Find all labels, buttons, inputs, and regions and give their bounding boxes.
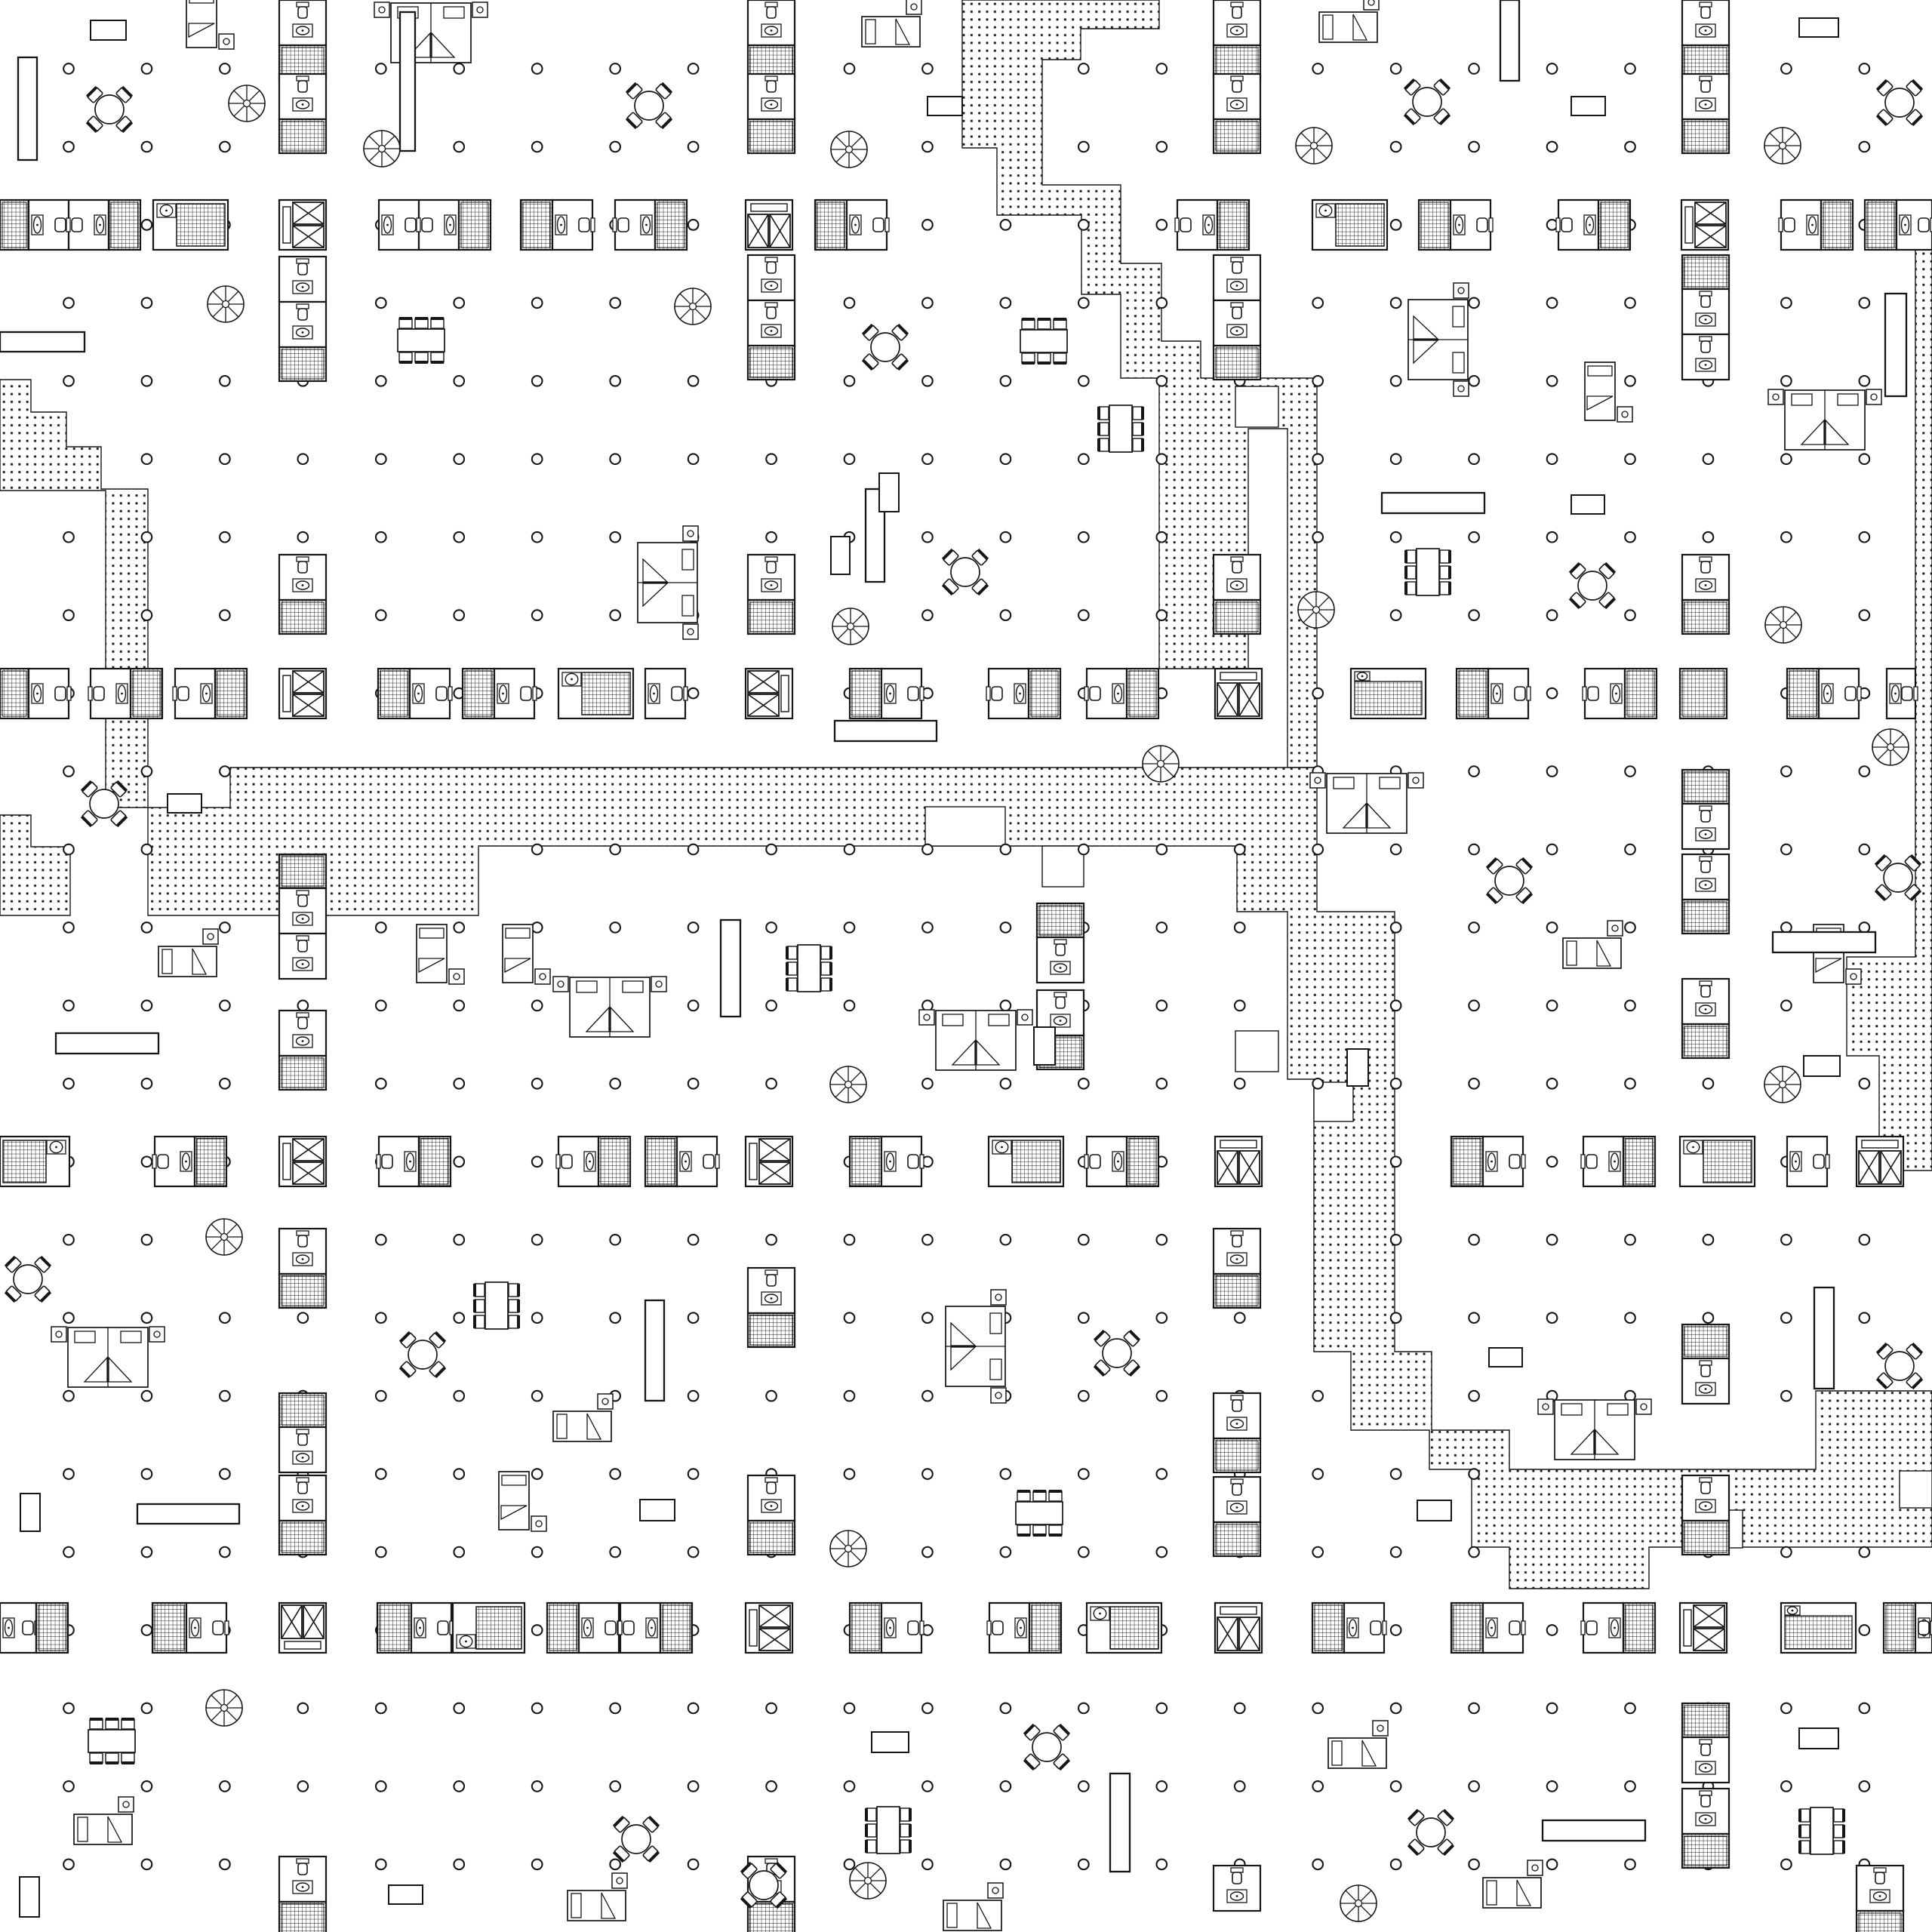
shower-pod <box>1682 1024 1729 1058</box>
structural-column <box>532 1078 543 1089</box>
structural-column <box>1547 376 1558 386</box>
shower-pod <box>815 200 847 250</box>
structural-column <box>1157 844 1168 855</box>
path-opening <box>1900 1471 1932 1508</box>
coffee-table <box>872 1732 909 1752</box>
structural-column <box>922 1547 933 1558</box>
elevator <box>1680 1603 1727 1653</box>
counter <box>1885 294 1906 396</box>
structural-column <box>688 1312 699 1323</box>
structural-column <box>610 63 620 74</box>
structural-column <box>1078 298 1089 309</box>
structural-column <box>610 142 620 152</box>
structural-column <box>1781 532 1792 543</box>
structural-column <box>454 454 464 464</box>
structural-column <box>1391 1547 1401 1558</box>
structural-column <box>1001 610 1011 620</box>
structural-column <box>844 1703 855 1714</box>
wc-pod-stack <box>1682 1737 1729 1783</box>
structural-column <box>1625 1078 1635 1089</box>
bathroom-pod <box>1087 1603 1161 1653</box>
structural-column <box>1078 1391 1089 1401</box>
wc-pod-stack <box>1214 74 1260 119</box>
shower-pod <box>1457 669 1488 718</box>
structural-column <box>376 1078 386 1089</box>
wc-pod-stack <box>1682 804 1729 849</box>
elevator <box>746 1137 792 1186</box>
structural-column <box>1469 1001 1479 1011</box>
structural-column <box>376 376 386 386</box>
wc-pod <box>29 669 71 718</box>
structural-column <box>844 1312 855 1323</box>
spiral-stair <box>1764 1066 1801 1103</box>
structural-column <box>766 532 777 543</box>
structural-column <box>1235 844 1245 855</box>
structural-column <box>1235 922 1245 933</box>
structural-column <box>1078 532 1089 543</box>
wc-pod-stack <box>1037 937 1084 983</box>
rect-table-6-chairs <box>786 945 832 992</box>
shower-pod <box>521 200 552 250</box>
structural-column <box>844 1391 855 1401</box>
double-bed <box>638 526 698 639</box>
wc-pod-stack <box>1682 334 1729 380</box>
structural-column <box>1001 1001 1011 1011</box>
shower-pod <box>850 1603 881 1653</box>
wc-pod <box>1084 669 1127 718</box>
structural-column <box>1001 532 1011 543</box>
structural-column <box>922 1078 933 1089</box>
wc-pod-stack <box>1682 289 1729 334</box>
structural-column <box>1391 376 1401 386</box>
shower-pod <box>1127 669 1158 718</box>
structural-column <box>688 688 699 699</box>
wc-pod <box>556 1137 598 1186</box>
wc-pod <box>410 669 452 718</box>
round-table-4-chairs <box>1875 854 1921 901</box>
structural-column <box>922 1391 933 1401</box>
structural-column <box>1625 610 1635 620</box>
double-bed <box>1538 1399 1651 1460</box>
structural-column <box>532 1781 543 1792</box>
structural-column <box>766 844 777 855</box>
structural-column <box>1625 1860 1635 1870</box>
structural-column <box>1703 1235 1714 1245</box>
structural-column <box>1469 1391 1479 1401</box>
structural-column <box>1781 298 1792 309</box>
round-table-4-chairs <box>1023 1724 1070 1770</box>
structural-column <box>376 63 386 74</box>
structural-column <box>1391 1001 1401 1011</box>
structural-column <box>922 142 933 152</box>
structural-column <box>1078 844 1089 855</box>
shower-pod <box>279 347 326 381</box>
structural-column <box>142 1157 152 1168</box>
wc-pod <box>1787 1137 1829 1186</box>
wc-pod-stack <box>279 555 326 600</box>
structural-column <box>1312 844 1323 855</box>
structural-column <box>63 766 74 777</box>
wc-pod-stack <box>279 934 326 979</box>
wc-pod <box>552 200 595 250</box>
structural-column <box>142 376 152 386</box>
shower-pod <box>748 346 795 380</box>
structural-column <box>766 1235 777 1245</box>
structural-column <box>63 1078 74 1089</box>
structural-column <box>454 1001 464 1011</box>
round-table-4-chairs <box>1876 1343 1923 1389</box>
spiral-stair <box>208 286 244 322</box>
structural-column <box>1625 1703 1635 1714</box>
structural-column <box>688 1547 699 1558</box>
shower-pod <box>1598 200 1630 250</box>
structural-column <box>688 1781 699 1792</box>
wc-pod <box>152 1137 195 1186</box>
structural-column <box>63 298 74 309</box>
wc-pod <box>173 669 215 718</box>
structural-column <box>1157 1391 1168 1401</box>
wc-pod-stack <box>748 1268 795 1313</box>
wc-pod <box>186 1603 229 1653</box>
structural-column <box>1391 1469 1401 1479</box>
structural-column <box>610 1469 620 1479</box>
round-table-4-chairs <box>1404 78 1451 125</box>
structural-column <box>63 1547 74 1558</box>
structural-column <box>688 454 699 464</box>
structural-column <box>1469 766 1479 777</box>
floor-plan-canvas <box>0 0 1932 1932</box>
shower-pod <box>1865 200 1897 250</box>
elevator <box>1215 1137 1262 1186</box>
structural-column <box>532 1235 543 1245</box>
structural-column <box>1860 532 1870 543</box>
wc-pod-stack <box>748 555 795 600</box>
double-bed <box>1408 283 1469 396</box>
structural-column <box>1157 298 1168 309</box>
counter <box>645 1300 664 1401</box>
structural-column <box>1312 1078 1323 1089</box>
wc-pod <box>881 1603 924 1653</box>
structural-column <box>610 1078 620 1089</box>
wc-pod-stack <box>1214 555 1260 600</box>
structural-column <box>1157 376 1168 386</box>
structural-column <box>1703 454 1714 464</box>
single-bed <box>862 0 921 47</box>
structural-column <box>688 1235 699 1245</box>
counter <box>721 920 740 1017</box>
structural-column <box>1391 298 1401 309</box>
shower-pod <box>748 1313 795 1347</box>
structural-column <box>1078 454 1089 464</box>
shower-pod <box>195 1137 226 1186</box>
structural-column <box>1078 1547 1089 1558</box>
structural-column <box>532 376 543 386</box>
wc-pod <box>29 200 71 250</box>
structural-column <box>1547 1625 1558 1635</box>
wc-pod <box>1488 669 1531 718</box>
spiral-stair <box>206 1219 242 1255</box>
structural-column <box>454 1312 464 1323</box>
structural-column <box>142 610 152 620</box>
structural-column <box>1781 844 1792 855</box>
structural-column <box>1391 1860 1401 1870</box>
shower-pod <box>419 1137 451 1186</box>
structural-column <box>1391 922 1401 933</box>
coffee-table <box>1799 18 1838 37</box>
structural-column <box>1469 1547 1479 1558</box>
structural-column <box>454 1157 464 1168</box>
structural-column <box>1860 376 1870 386</box>
wc-pod-stack <box>279 1857 326 1902</box>
structural-column <box>844 1781 855 1792</box>
structural-column <box>1547 220 1558 230</box>
shower-pod <box>463 669 494 718</box>
structural-column <box>1001 376 1011 386</box>
structural-column <box>1001 454 1011 464</box>
structural-column <box>1469 1781 1479 1792</box>
structural-column <box>844 1235 855 1245</box>
shower-pod <box>1312 1603 1344 1653</box>
structural-column <box>63 1781 74 1792</box>
structural-column <box>532 1157 543 1168</box>
structural-column <box>532 1469 543 1479</box>
shower-pod <box>1682 1521 1729 1555</box>
structural-column <box>142 63 152 74</box>
shower-pod <box>279 1521 326 1555</box>
wc-pod <box>1483 1603 1525 1653</box>
structural-column <box>1469 1703 1479 1714</box>
structural-column <box>1312 376 1323 386</box>
structural-column <box>1547 922 1558 933</box>
wc-pod <box>1581 1137 1623 1186</box>
wc-pod <box>1344 1603 1386 1653</box>
shower-pod <box>1682 1324 1729 1358</box>
single-bed <box>553 1394 613 1441</box>
wc-pod-stack <box>748 300 795 346</box>
spiral-stair <box>1764 128 1801 164</box>
structural-column <box>1625 376 1635 386</box>
structural-column <box>610 298 620 309</box>
shower-pod <box>152 1603 186 1653</box>
structural-column <box>1703 1312 1714 1323</box>
spiral-stair <box>831 131 867 168</box>
sanitary-modules <box>0 0 1932 1932</box>
structural-column <box>454 922 464 933</box>
structural-column <box>1391 1625 1401 1635</box>
structural-column <box>220 1001 230 1011</box>
spiral-stair <box>364 131 400 167</box>
structural-column <box>610 1781 620 1792</box>
structural-column <box>220 63 230 74</box>
structural-column <box>1078 142 1089 152</box>
structural-column <box>63 610 74 620</box>
structural-column <box>1469 844 1479 855</box>
structural-column <box>1312 1391 1323 1401</box>
wc-pod <box>1779 200 1821 250</box>
elevator <box>1215 1603 1262 1653</box>
structural-column <box>376 1781 386 1792</box>
shower-pod <box>1214 1438 1260 1472</box>
shower-pod <box>748 1521 795 1555</box>
structural-column <box>220 1781 230 1792</box>
structural-column <box>688 844 699 855</box>
structural-column <box>1078 1703 1089 1714</box>
wc-pod-stack <box>279 74 326 119</box>
structural-column <box>220 142 230 152</box>
structural-column <box>532 1001 543 1011</box>
structural-column <box>454 376 464 386</box>
structural-column <box>63 1391 74 1401</box>
structural-column <box>1625 532 1635 543</box>
bathroom-pod <box>1680 1137 1755 1186</box>
round-table-4-chairs <box>1094 1330 1140 1377</box>
wc-pod-stack <box>1682 1475 1729 1521</box>
structural-column <box>1547 1781 1558 1792</box>
structural-column <box>1625 844 1635 855</box>
structural-column <box>454 532 464 543</box>
rect-table-6-chairs <box>1016 1490 1063 1537</box>
structural-column <box>922 922 933 933</box>
structural-column <box>1860 1078 1870 1089</box>
wc-pod <box>1897 200 1932 250</box>
structural-column <box>1625 766 1635 777</box>
structural-column <box>1157 1312 1168 1323</box>
coffee-table <box>1571 97 1605 115</box>
spiral-stair <box>1340 1885 1377 1921</box>
coffee-table <box>928 97 962 115</box>
structural-column <box>1078 1078 1089 1089</box>
elevator <box>746 1603 792 1653</box>
structural-column <box>63 63 74 74</box>
spiral-stair <box>1298 592 1334 628</box>
bathroom-pod <box>453 1603 525 1653</box>
structural-column <box>610 610 620 620</box>
shower-pod <box>598 1137 630 1186</box>
structural-column <box>1001 844 1011 855</box>
structural-column <box>142 1860 152 1870</box>
structural-column <box>610 532 620 543</box>
structural-column <box>922 610 933 620</box>
structural-column <box>610 1547 620 1558</box>
spiral-stair <box>830 1066 866 1103</box>
structural-column <box>376 298 386 309</box>
spiral-stair <box>1765 607 1801 643</box>
structural-column <box>1781 376 1792 386</box>
structural-column <box>142 844 152 855</box>
shower-pod <box>1214 1274 1260 1308</box>
structural-column <box>220 766 230 777</box>
structural-column <box>1235 1001 1245 1011</box>
structural-column <box>1001 1781 1011 1792</box>
structural-column <box>1312 63 1323 74</box>
structural-column <box>1312 298 1323 309</box>
single-bed <box>74 1797 134 1844</box>
structural-column <box>220 610 230 620</box>
structural-column <box>63 844 74 855</box>
structural-column <box>220 1547 230 1558</box>
bathroom-pod <box>989 1137 1063 1186</box>
structural-column <box>454 1391 464 1401</box>
elevator <box>279 200 326 250</box>
structural-column <box>1781 1547 1792 1558</box>
structural-column <box>1001 1703 1011 1714</box>
structural-column <box>688 1860 699 1870</box>
wc-pod-stack <box>279 302 326 347</box>
shower-pod <box>1682 600 1729 634</box>
structural-column <box>1469 454 1479 464</box>
structural-column <box>1001 922 1011 933</box>
round-table-4-chairs <box>613 1816 660 1863</box>
structural-column <box>922 1001 933 1011</box>
coffee-table <box>20 1877 39 1917</box>
structural-column <box>376 1703 386 1714</box>
shower-pod <box>215 669 247 718</box>
shower-pod <box>1214 1522 1260 1556</box>
structural-column <box>298 454 309 464</box>
structural-column <box>844 922 855 933</box>
shower-pod <box>1127 1137 1158 1186</box>
structural-column <box>1391 142 1401 152</box>
structural-column <box>844 1860 855 1870</box>
structural-column <box>1469 1469 1479 1479</box>
structural-column <box>1312 688 1323 699</box>
single-bed <box>1319 0 1379 42</box>
structural-column <box>610 1703 620 1714</box>
shower-pod <box>1884 1603 1915 1653</box>
structural-column <box>844 1469 855 1479</box>
elevator <box>279 1137 326 1186</box>
structural-column <box>1469 922 1479 933</box>
round-table-4-chairs <box>626 82 672 129</box>
structural-column <box>1391 1157 1401 1168</box>
double-bed <box>51 1327 165 1387</box>
wc-pod <box>1819 669 1861 718</box>
shower-pod <box>279 1393 326 1427</box>
structural-column <box>1001 1078 1011 1089</box>
structural-column <box>1860 922 1870 933</box>
structural-column <box>922 532 933 543</box>
wc-pod <box>379 200 421 250</box>
structural-column <box>1391 610 1401 620</box>
structural-column <box>142 532 152 543</box>
structural-column <box>1860 610 1870 620</box>
shower-pod <box>36 1603 68 1653</box>
single-bed <box>1585 362 1632 422</box>
path-opening <box>925 807 1005 846</box>
structural-column <box>1078 1469 1089 1479</box>
rect-table-6-chairs <box>865 1807 912 1854</box>
structural-column <box>1625 142 1635 152</box>
wc-pod-stack <box>1682 1789 1729 1834</box>
structural-column <box>1001 1235 1011 1245</box>
wc-pod-stack <box>279 888 326 934</box>
shower-pod <box>459 200 491 250</box>
structural-column <box>63 1860 74 1870</box>
shower-pod <box>279 854 326 888</box>
structural-column <box>1391 1703 1401 1714</box>
shower-pod <box>1214 600 1260 634</box>
counter <box>1543 1820 1645 1841</box>
coffee-table <box>1804 1056 1840 1076</box>
wc-pod <box>677 1137 719 1186</box>
path-left-terrace <box>0 815 70 915</box>
round-table-4-chairs <box>1407 1809 1454 1856</box>
bathroom-pod <box>153 200 228 250</box>
wc-pod-stack <box>279 1229 326 1274</box>
double-bed <box>553 977 666 1037</box>
coffee-table <box>1489 1348 1522 1367</box>
wc-pod-stack <box>748 1475 795 1521</box>
